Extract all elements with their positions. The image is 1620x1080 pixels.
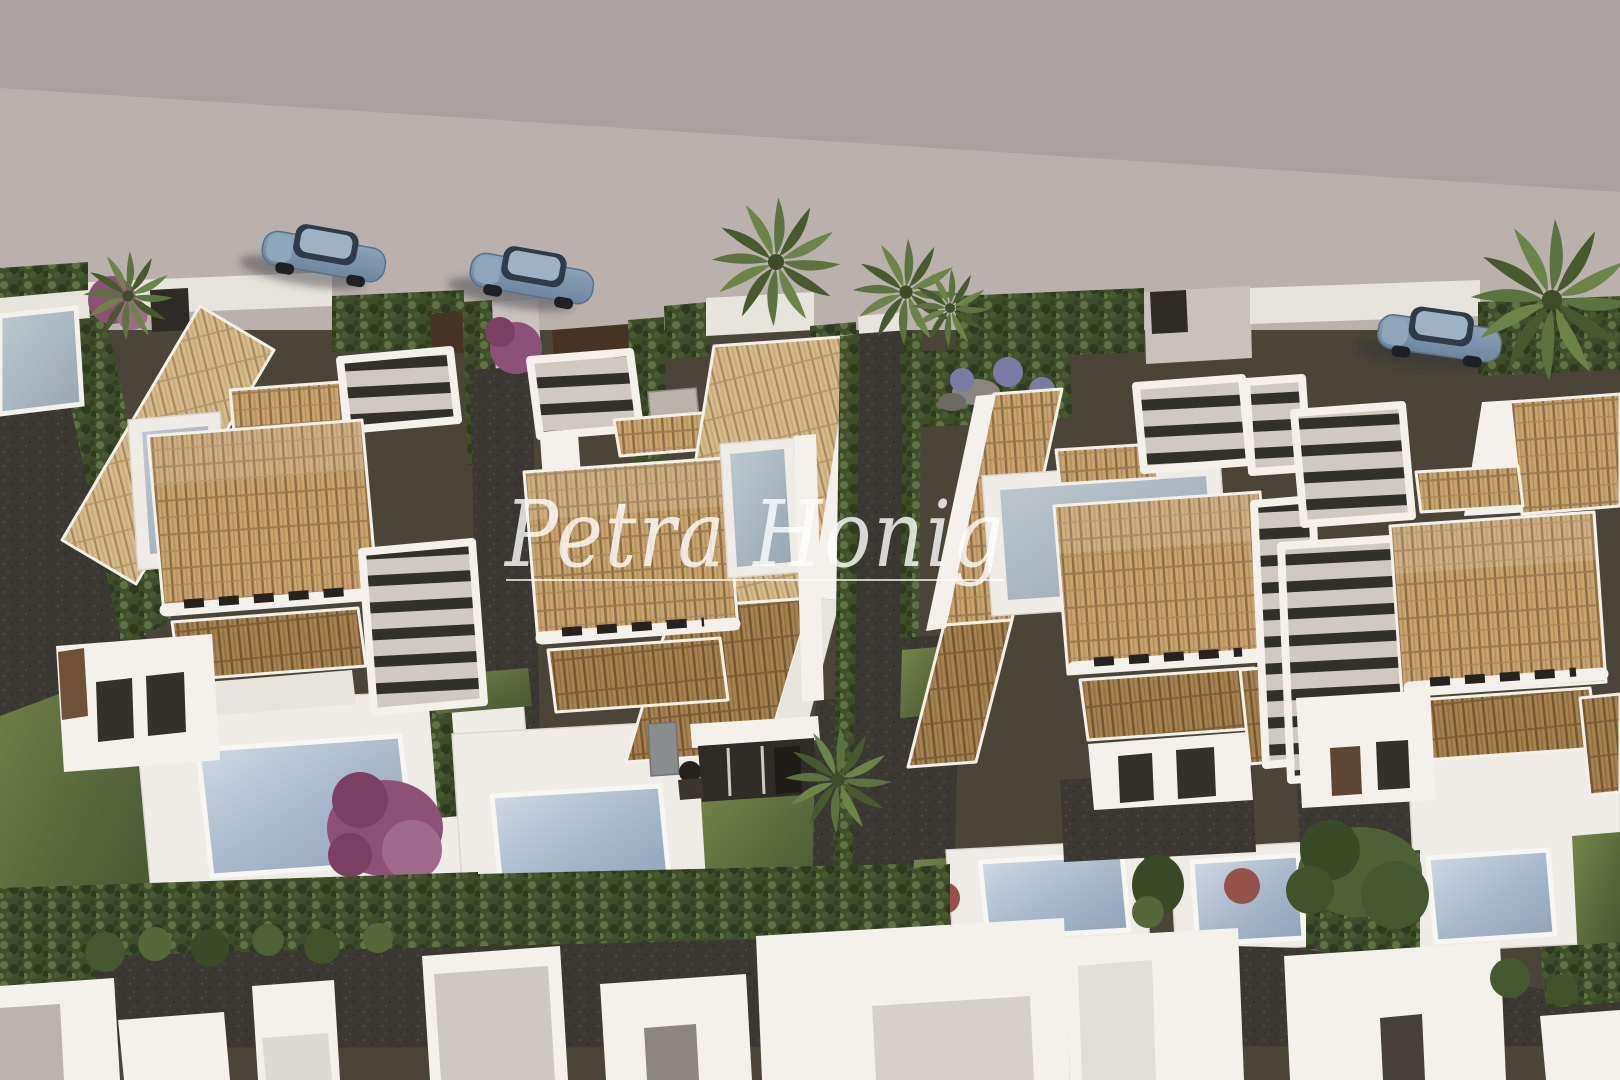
bougainvillea-blob-2 — [332, 772, 388, 828]
villa2-porch-frame-2 — [762, 746, 764, 794]
bottom-building-8-court — [1380, 1014, 1425, 1080]
front-hedge-3 — [664, 302, 710, 360]
front-gate-1 — [150, 288, 190, 332]
bougainvillea-blob-3 — [382, 820, 442, 880]
bottom-bush-4 — [252, 924, 284, 956]
bottom-building-4-roof — [434, 966, 555, 1080]
bottom-building-7-inner — [1078, 960, 1156, 1080]
villa1-pergola-top — [340, 350, 458, 430]
villa4-roof-apron — [1416, 688, 1598, 760]
bottom-bush-3 — [191, 929, 229, 967]
villa4-entry-roof — [1416, 466, 1523, 512]
villa3-rock-2 — [938, 393, 966, 411]
villa4-lawn — [1572, 832, 1620, 960]
front-gate-2 — [1150, 290, 1188, 334]
villa3-bush-2 — [1132, 896, 1164, 928]
bottom-building-1-court — [0, 1004, 64, 1080]
bottom-bush-right-2 — [1546, 974, 1578, 1006]
villa1-window-2 — [146, 672, 186, 736]
villa3-lower-wall — [1088, 732, 1253, 810]
villa2-bbq-cart — [678, 778, 704, 800]
villa4-pool — [1428, 850, 1555, 942]
villa3-flower-bush-3 — [950, 368, 974, 392]
villa4-pergola-top — [1294, 405, 1412, 524]
tree-canopy-4 — [1286, 866, 1334, 914]
scene-svg: Petra Honig — [0, 0, 1620, 1080]
villa4-window — [1376, 740, 1410, 790]
neighbor-terrace — [0, 308, 82, 414]
villa2-ac-unit — [648, 722, 679, 776]
villa4-door — [1330, 746, 1362, 796]
bottom-bush-right-1 — [1490, 958, 1530, 998]
bottom-bush-2 — [138, 927, 172, 961]
bottom-building-5-court — [644, 1024, 699, 1080]
villa1-window-1 — [96, 678, 134, 742]
watermark: Petra Honig — [503, 481, 1005, 588]
villa3-roof-apron — [1080, 668, 1262, 740]
bottom-bush-5 — [304, 928, 340, 964]
villa3-window-2 — [1176, 747, 1216, 799]
render-image: Petra Honig — [0, 0, 1620, 1080]
bottom-building-6-roof — [872, 996, 1034, 1080]
bottom-bush-1 — [85, 932, 125, 972]
villa4-corner-roof — [1510, 394, 1620, 514]
bottom-bush-6 — [363, 923, 393, 953]
villa3-pergola-top — [1136, 378, 1250, 470]
villa1-wood-cladding — [58, 648, 88, 720]
villa3-red-shrub-2 — [1224, 868, 1260, 904]
villa4-lower-volume — [1296, 690, 1436, 808]
tree-canopy-3 — [1361, 861, 1429, 929]
bottom-building-9 — [1540, 1010, 1620, 1080]
villa3-flower-bush-1 — [993, 357, 1023, 387]
villa1-pergola-side — [362, 542, 484, 712]
villa3-window-1 — [1118, 753, 1154, 803]
villa2-porch-frame-1 — [728, 748, 730, 796]
bottom-building-3-inner — [262, 1033, 332, 1080]
villa-4 — [1281, 394, 1620, 977]
villa2-roof-apron — [548, 638, 728, 712]
bottom-building-2 — [118, 1012, 230, 1080]
bougainvillea-blob-4 — [328, 833, 372, 877]
watermark-text: Petra Honig — [503, 481, 1005, 588]
bush-purple-gate-2 — [485, 317, 515, 347]
